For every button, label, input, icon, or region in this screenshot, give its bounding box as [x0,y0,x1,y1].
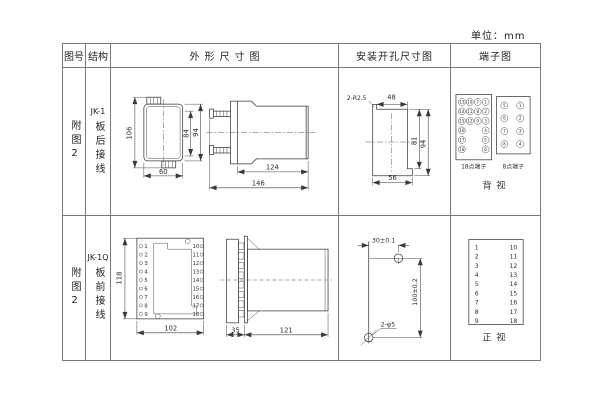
svg-text:16: 16 [459,127,465,132]
svg-text:8: 8 [503,141,506,146]
fig-no-row1: 附图2 [69,120,79,163]
dim-width-bottom: 56 [388,174,397,182]
dim-height-overall: 106 [125,126,133,139]
dim-height-overall: 94 [420,139,428,148]
cell-outline-row1: 106 84 94 60 [111,68,339,216]
dim-width: 102 [164,324,177,332]
header-terminal-diagram: 端子图 [451,44,541,68]
outline-drawing-jk1: 106 84 94 60 [111,68,338,216]
dim-width-top: 48 [387,93,396,101]
svg-text:9: 9 [476,118,479,123]
svg-text:11: 11 [509,253,517,260]
cell-structure-row2: JK-1Q 板前接线 [86,216,111,361]
cell-terminal-row1: 131071141182151293164175186 51627384 18点… [451,68,541,216]
svg-text:13: 13 [459,99,465,104]
front-view: 106 84 94 60 [125,97,202,178]
terminal-diagram-jk1q: 110211312413514615716817918 正视 [451,216,540,361]
svg-text:8: 8 [476,108,479,113]
label-front-view: 正视 [483,331,511,343]
header-structure: 结构 [86,44,111,68]
svg-text:4: 4 [475,272,479,279]
terminal-grid-8: 51627384 [501,101,524,147]
svg-text:1: 1 [519,102,522,107]
cell-terminal-row2: 110211312413514615716817918 正视 [451,216,541,361]
svg-text:12: 12 [509,262,517,269]
svg-text:7: 7 [503,128,506,133]
dim-hole-spacing-y: 100±0.2 [412,278,419,305]
datasheet-page: 单位：mm 图号 结构 外形尺寸图 安装开孔尺寸图 端子图 附图2 JK-1 板… [0,0,600,400]
cell-outline-row2: 110211312413514615716817918 118 102 [111,216,339,361]
mounting-drawing-jk1: 2-R2.5 48 56 81 94 [339,68,450,216]
svg-text:5: 5 [475,281,479,288]
svg-text:8: 8 [475,308,479,315]
fig-no-row2: 附图2 [69,267,79,310]
spec-table: 图号 结构 外形尺寸图 安装开孔尺寸图 端子图 附图2 JK-1 板后接线 [62,43,541,361]
front-view: 110211312413514615716817918 118 102 [115,238,203,335]
svg-text:3: 3 [475,262,479,269]
svg-text:14: 14 [459,108,465,113]
dim-hole-spacing-x: 30±0.1 [372,237,395,244]
svg-text:6: 6 [475,290,479,297]
svg-text:15: 15 [459,118,465,123]
svg-text:10: 10 [509,244,517,251]
svg-text:6: 6 [484,146,487,151]
svg-text:18: 18 [459,146,465,151]
cell-fig-no-row2: 附图2 [63,216,86,361]
cell-mounting-row2: 30±0.1 100±0.2 2-φ5 [339,216,451,361]
terminal-diagram-jk1: 131071141182151293164175186 51627384 18点… [451,68,540,216]
dim-depth-body: 124 [266,163,279,171]
unit-label: 单位：mm [471,27,525,42]
svg-text:11: 11 [467,108,473,113]
mounting-drawing-jk1q: 30±0.1 100±0.2 2-φ5 [339,216,450,361]
svg-text:2: 2 [144,252,147,258]
svg-text:15: 15 [193,286,200,292]
svg-text:8: 8 [144,303,147,309]
model-row2: JK-1Q [87,253,108,262]
svg-text:4: 4 [484,127,487,132]
dim-height-inner: 81 [410,136,418,145]
svg-text:1: 1 [475,244,479,251]
svg-text:18: 18 [509,318,517,325]
label-8-point: 8点端子 [503,162,525,170]
header-outline-dims: 外形尺寸图 [111,44,339,68]
svg-text:18: 18 [193,311,200,317]
svg-text:11: 11 [193,252,200,258]
cell-mounting-row1: 2-R2.5 48 56 81 94 [339,68,451,216]
svg-text:10: 10 [467,99,473,104]
dim-width: 60 [159,167,168,175]
header-mounting-dims: 安装开孔尺寸图 [339,44,451,68]
svg-text:16: 16 [193,294,200,300]
label-18-point: 18点端子 [461,162,486,170]
label-rear-view: 背视 [483,179,511,191]
mounting-holes: 30±0.1 100±0.2 2-φ5 [358,237,422,345]
svg-text:17: 17 [459,137,465,142]
svg-text:5: 5 [503,102,506,107]
wiring-row2: 板前接线 [93,267,103,323]
svg-text:1: 1 [144,244,147,250]
svg-text:6: 6 [144,286,148,292]
dim-corner-radius: 2-R2.5 [347,94,367,101]
svg-text:2: 2 [484,108,487,113]
svg-text:6: 6 [503,115,506,120]
svg-text:9: 9 [144,311,147,317]
outline-drawing-jk1q: 110211312413514615716817918 118 102 [111,216,338,361]
svg-text:12: 12 [467,118,473,123]
wiring-row1: 板后接线 [93,121,103,177]
svg-text:9: 9 [475,318,479,325]
svg-text:4: 4 [519,141,522,146]
terminal-grid-18: 131071141182151293164175186 [458,98,489,152]
svg-text:17: 17 [193,303,200,309]
svg-text:7: 7 [475,299,479,306]
svg-text:13: 13 [509,272,517,279]
svg-text:7: 7 [144,294,147,300]
svg-text:13: 13 [193,269,200,275]
svg-text:16: 16 [509,299,517,306]
svg-text:1: 1 [484,99,487,104]
svg-text:5: 5 [144,278,147,284]
dim-height-body: 94 [192,128,200,137]
svg-text:3: 3 [519,128,522,133]
svg-text:5: 5 [484,137,487,142]
dim-depth-body: 121 [280,326,293,334]
terminal-panel-8 [496,96,530,153]
cell-structure-row1: JK-1 板后接线 [86,68,111,216]
svg-text:14: 14 [509,281,517,288]
dim-depth-front: 35 [231,326,240,334]
svg-text:7: 7 [476,99,479,104]
dim-hole-size: 2-φ5 [381,321,396,328]
model-row1: JK-1 [91,107,106,116]
side-view: 35 121 [221,236,333,337]
svg-text:3: 3 [144,261,147,267]
front-terminal-numbers: 110211312413514615716817918 [139,244,203,318]
svg-text:17: 17 [509,308,517,315]
header-fig-no: 图号 [63,44,86,68]
svg-text:2: 2 [475,253,479,260]
dim-height: 118 [115,271,123,284]
svg-text:3: 3 [484,118,487,123]
terminal-number-table: 110211312413514615716817918 [475,244,518,325]
svg-text:12: 12 [193,261,200,267]
svg-text:14: 14 [193,278,200,284]
svg-text:2: 2 [519,115,522,120]
svg-text:10: 10 [193,244,200,250]
dim-height-inner: 84 [183,129,191,138]
svg-text:4: 4 [144,269,148,275]
cell-fig-no-row1: 附图2 [63,68,86,216]
side-view: 124 146 [207,101,316,190]
mounting-cutout: 2-R2.5 48 56 81 94 [347,93,430,185]
svg-text:15: 15 [509,290,517,297]
dim-depth-overall: 146 [252,179,265,187]
